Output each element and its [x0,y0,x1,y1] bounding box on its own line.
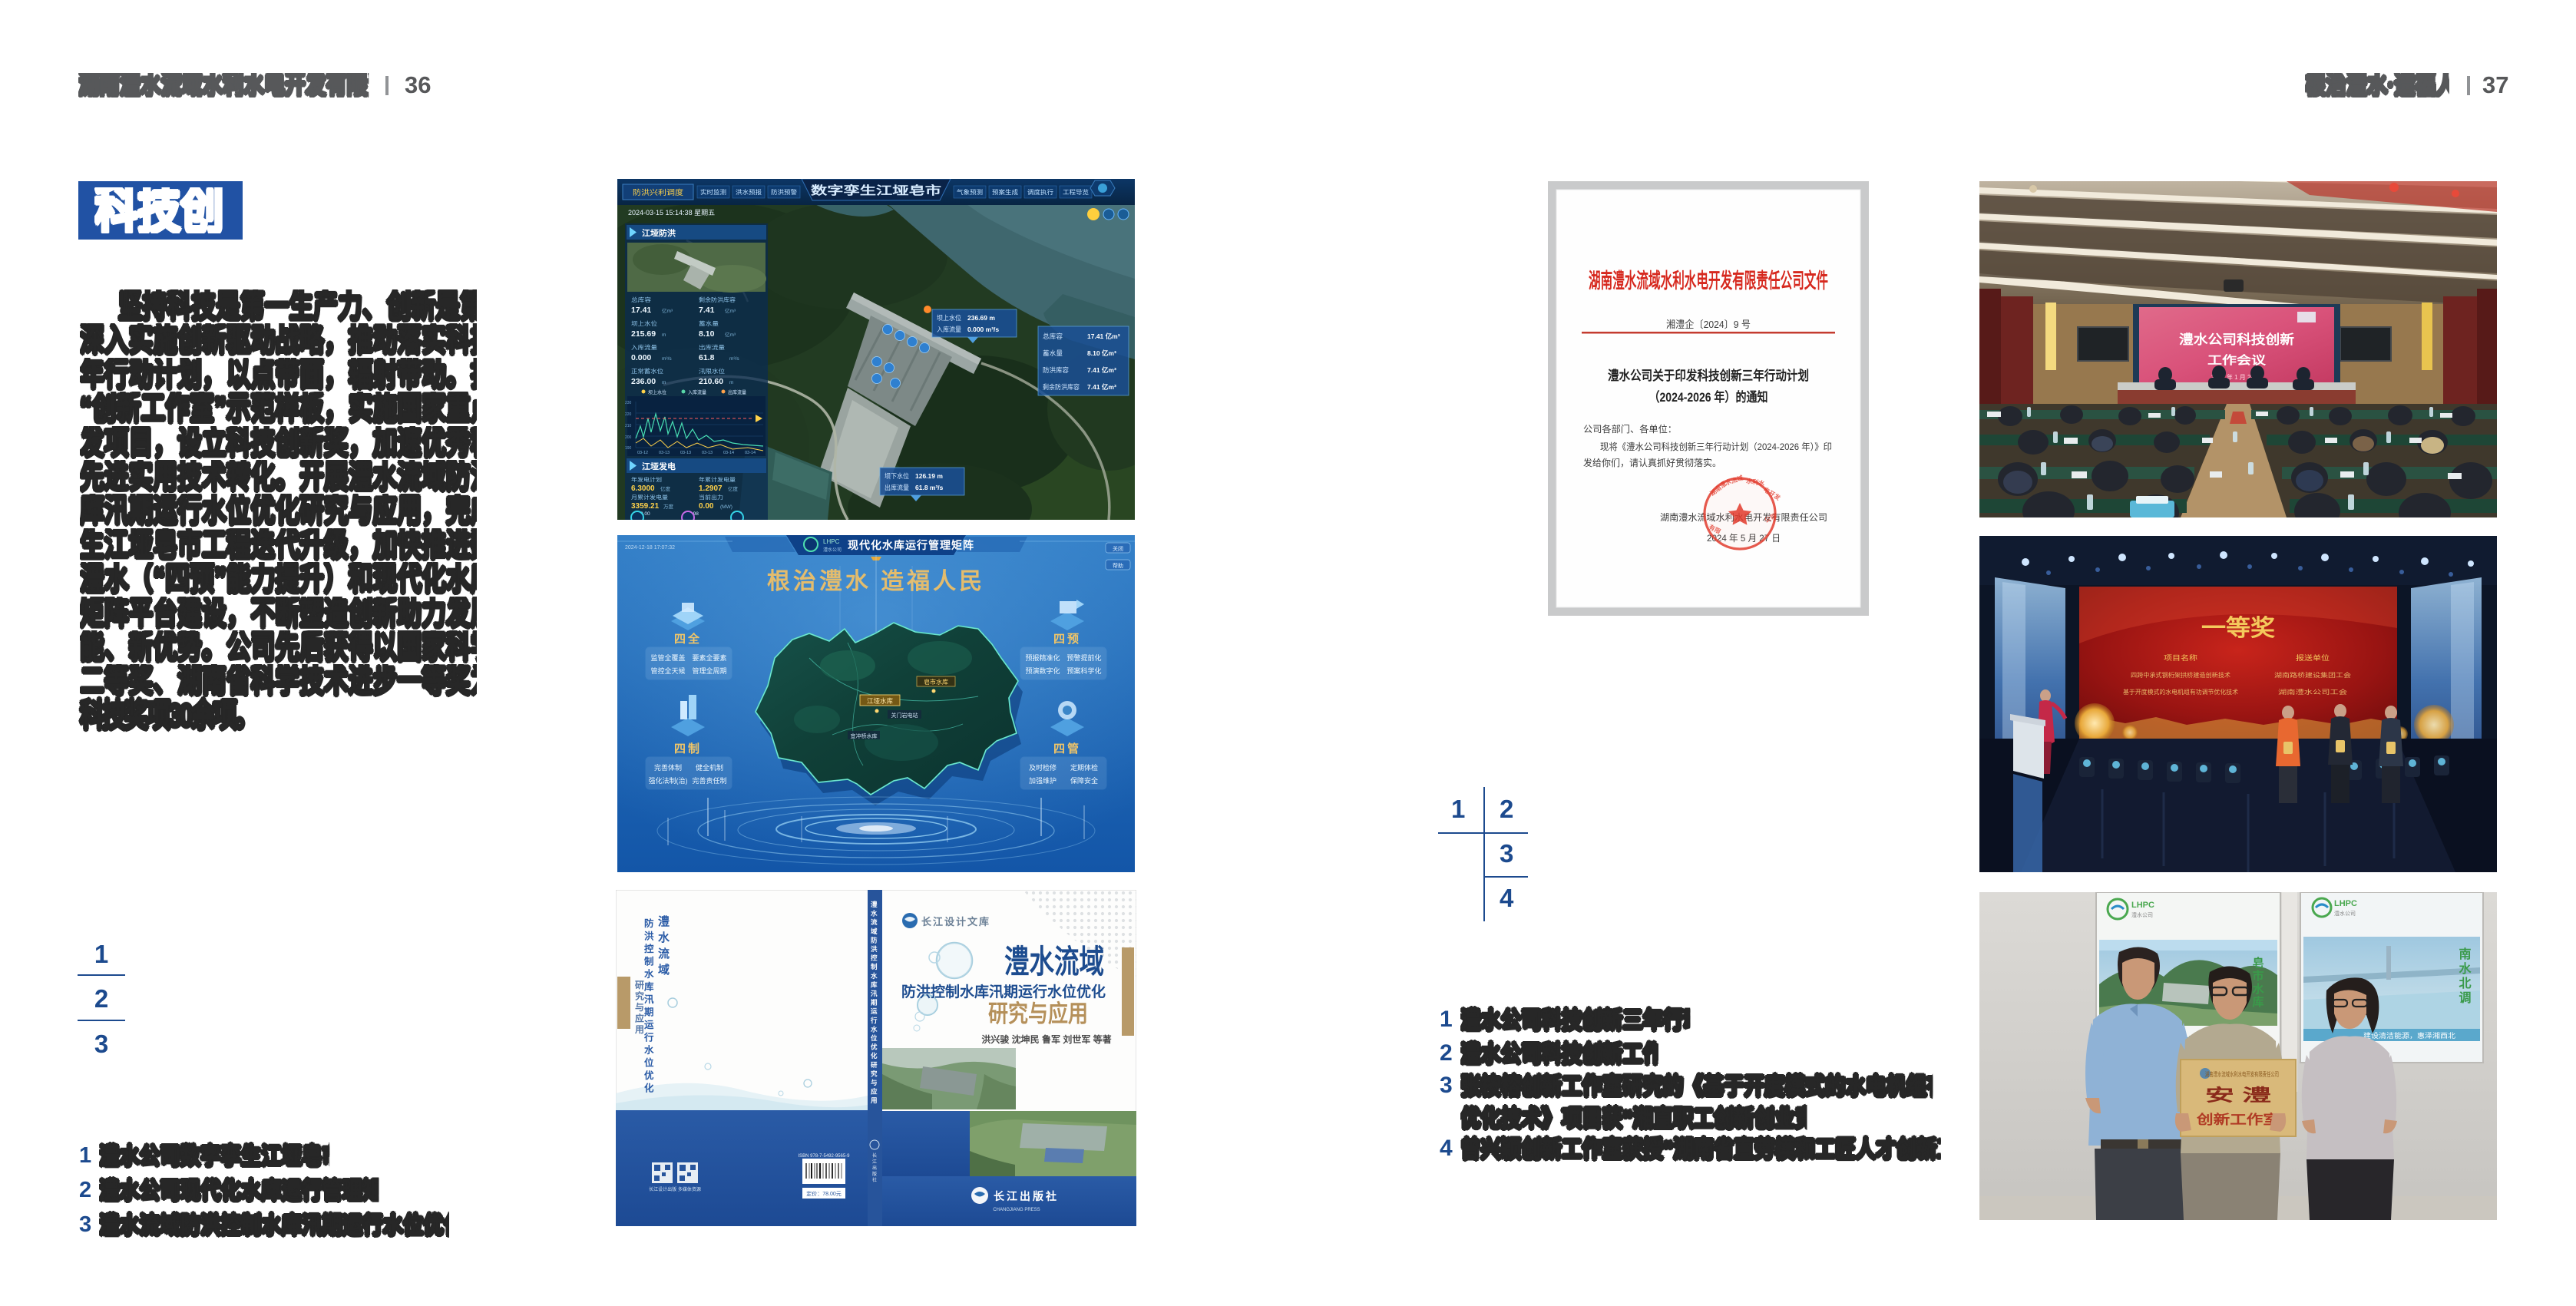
svg-text:工作会议: 工作会议 [2207,353,2267,367]
svg-text:亿度: 亿度 [728,485,739,492]
svg-text:坝上水位: 坝上水位 [648,388,666,395]
svg-text:澧: 澧 [658,914,670,928]
svg-text:江垭发电: 江垭发电 [642,461,676,471]
svg-text:m: m [662,332,666,338]
svg-text:澧水公司: 澧水公司 [823,547,842,553]
svg-text:关闭: 关闭 [1113,545,1123,552]
svg-text:6.3000: 6.3000 [631,484,655,493]
svg-text:入库流量: 入库流量 [631,343,658,351]
svg-text:调度执行: 调度执行 [1027,188,1053,196]
svg-text:运: 运 [871,1007,878,1015]
svg-text:坝上水位: 坝上水位 [631,319,658,327]
svg-text:CHANGJIANG PRESS: CHANGJIANG PRESS [993,1208,1040,1212]
svg-text:7.41: 7.41 [699,306,715,315]
svg-text:年发电计划: 年发电计划 [631,476,662,483]
svg-text:汛: 汛 [644,994,654,1005]
svg-text:期: 期 [871,999,878,1007]
svg-text:完善体制: 完善体制 [654,763,682,772]
svg-text:创新工作室: 创新工作室 [2196,1112,2280,1127]
svg-text:预警提前化: 预警提前化 [1066,653,1101,662]
svg-text:蓄水量: 蓄水量 [1043,349,1063,357]
svg-text:汛限水位: 汛限水位 [699,367,726,375]
svg-text:四管: 四管 [1053,742,1081,755]
svg-text:LHPC: LHPC [823,538,840,545]
svg-text:防: 防 [644,918,654,929]
svg-text:220: 220 [625,412,632,417]
svg-text:坝下水位: 坝下水位 [885,472,909,480]
svg-text:洪兴骏 沈坤民 鲁军 刘世军 等著: 洪兴骏 沈坤民 鲁军 刘世军 等著 [981,1033,1111,1045]
svg-text:四跨中承式钢桁架拱桥建造创新技术: 四跨中承式钢桁架拱桥建造创新技术 [2131,671,2230,679]
svg-text:万度: 万度 [663,503,674,510]
svg-text:建设清洁能源，惠泽湘西北: 建设清洁能源，惠泽湘西北 [2363,1031,2455,1040]
svg-text:江垭防洪: 江垭防洪 [642,228,676,238]
svg-text:蓄水量: 蓄水量 [699,319,719,327]
svg-text:水: 水 [644,1044,654,1056]
svg-text:行: 行 [870,1017,878,1024]
svg-text:皂市水库: 皂市水库 [924,678,948,686]
svg-text:预演数字化: 预演数字化 [1025,666,1060,675]
svg-text:流: 流 [658,947,670,960]
svg-text:究: 究 [871,1070,878,1077]
svg-text:项目名称: 项目名称 [2164,653,2197,662]
svg-text:定期体检: 定期体检 [1070,763,1098,772]
svg-text:四预: 四预 [1053,633,1081,646]
svg-text:2024-12-18 17:07:32: 2024-12-18 17:07:32 [625,545,675,551]
svg-text:总库容: 总库容 [1043,332,1063,340]
svg-text:亿m³: 亿m³ [662,307,673,314]
svg-text:库: 库 [644,981,654,993]
svg-text:水: 水 [658,931,670,944]
svg-text:入库流量: 入库流量 [688,388,706,395]
svg-text:用: 用 [634,1024,644,1035]
svg-text:03-13: 03-13 [702,451,713,455]
svg-text:管理全周期: 管理全周期 [692,666,726,675]
svg-text:澧水公司科技创新: 澧水公司科技创新 [2179,332,2294,347]
svg-text:3359.21: 3359.21 [631,502,660,511]
svg-text:强化法制(治): 强化法制(治) [649,776,688,785]
svg-text:亿m³: 亿m³ [725,331,736,338]
svg-text:0.000: 0.000 [631,353,651,362]
svg-text:7.41 亿m³: 7.41 亿m³ [1087,366,1116,374]
svg-text:行: 行 [643,1032,654,1043]
svg-text:（2024-2026 年）的通知: （2024-2026 年）的通知 [1649,389,1768,405]
svg-text:应: 应 [871,1088,878,1096]
svg-text:期: 期 [644,1007,654,1018]
svg-text:m: m [729,380,733,385]
svg-text:126.19 m: 126.19 m [915,472,943,480]
svg-text:加强维护: 加强维护 [1029,776,1057,785]
svg-text:防洪库容: 防洪库容 [1043,366,1069,374]
svg-text:洪: 洪 [871,945,878,953]
svg-text:控: 控 [871,954,878,962]
svg-text:公司各部门、各单位：: 公司各部门、各单位： [1583,423,1677,435]
svg-text:LHPC: LHPC [2334,899,2357,908]
svg-text:长: 长 [872,1152,877,1159]
svg-text:03-14: 03-14 [745,451,756,455]
svg-text:研: 研 [871,1061,878,1069]
svg-text:洪水预报: 洪水预报 [736,188,762,196]
svg-text:用: 用 [870,1096,878,1104]
svg-text:236.00: 236.00 [631,377,656,386]
svg-text:流: 流 [871,918,878,926]
svg-text:数字孪生江垭皂市: 数字孪生江垭皂市 [811,184,941,197]
svg-text:制: 制 [871,963,878,970]
svg-text:现代化水库运行管理矩阵: 现代化水库运行管理矩阵 [848,539,974,551]
svg-text:化: 化 [871,1052,878,1060]
svg-text:湘澧企〔2024〕9 号: 湘澧企〔2024〕9 号 [1666,319,1751,330]
svg-text:与: 与 [871,1079,878,1086]
svg-text:190: 190 [625,446,632,451]
svg-text:澧水公司: 澧水公司 [2334,910,2356,917]
svg-text:0.00: 0.00 [699,502,714,511]
svg-text:预报精准化: 预报精准化 [1025,653,1060,662]
svg-text:7.41 亿m³: 7.41 亿m³ [1087,383,1116,391]
svg-text:研: 研 [635,980,644,990]
svg-text:社: 社 [872,1177,877,1183]
svg-text:澧水流域: 澧水流域 [1004,944,1104,980]
svg-text:四全: 四全 [674,632,702,646]
svg-text:亿m³: 亿m³ [725,307,736,314]
svg-text:出库流量: 出库流量 [699,343,726,351]
svg-text:亿度: 亿度 [660,485,671,492]
svg-text:1.2907: 1.2907 [699,484,723,493]
svg-text:管控全天候: 管控全天候 [650,666,685,675]
svg-text:优: 优 [871,1043,878,1051]
svg-text:防: 防 [871,936,878,944]
svg-text:澧水公司: 澧水公司 [2131,911,2153,918]
svg-text:当前出力: 当前出力 [699,494,723,501]
svg-text:2024-03-15 15:14:38 星期五: 2024-03-15 15:14:38 星期五 [628,209,715,217]
svg-text:230: 230 [625,401,632,405]
svg-text:优: 优 [644,1070,654,1081]
svg-text:制: 制 [644,956,654,967]
svg-text:位: 位 [871,1034,878,1042]
svg-text:版: 版 [872,1171,877,1177]
svg-text:03-14: 03-14 [723,451,734,455]
svg-text:8.10: 8.10 [699,329,715,339]
svg-text:正常蓄水位: 正常蓄水位 [631,367,664,375]
svg-text:月累计发电量: 月累计发电量 [631,494,668,501]
svg-text:61.8: 61.8 [699,353,715,362]
svg-text:210.60: 210.60 [699,377,723,386]
svg-text:200: 200 [625,435,632,440]
svg-text:江垭水库: 江垭水库 [867,697,894,705]
svg-text:长江设计出版 多媒体资源: 长江设计出版 多媒体资源 [649,1186,701,1192]
svg-text:汛: 汛 [871,990,878,997]
svg-text:长江出版社: 长江出版社 [994,1190,1059,1202]
svg-text:预案科学化: 预案科学化 [1066,666,1101,675]
svg-text:坝上水位: 坝上水位 [937,314,961,322]
svg-text:出库流量: 出库流量 [885,484,909,491]
svg-text:化: 化 [644,1083,654,1094]
svg-text:03-13: 03-13 [680,451,691,455]
svg-text:帮助: 帮助 [1113,562,1123,569]
svg-text:防洪控制水库汛期运行水位优化: 防洪控制水库汛期运行水位优化 [901,983,1106,1000]
svg-text:防洪兴利调度: 防洪兴利调度 [633,188,684,197]
svg-text:皂市水库: 皂市水库 [2251,956,2264,1009]
svg-text:湖南路桥建设集团工会: 湖南路桥建设集团工会 [2274,671,2351,679]
svg-text:工程导览: 工程导览 [1063,188,1089,196]
svg-text:LHPC: LHPC [2131,901,2154,910]
svg-text:位: 位 [644,1057,654,1069]
svg-text:0.000 m³/s: 0.000 m³/s [967,326,999,333]
svg-text:气象预测: 气象预测 [957,188,983,196]
svg-text:保障安全: 保障安全 [1070,776,1098,785]
svg-text:与: 与 [635,1002,644,1013]
svg-text:出库流量: 出库流量 [728,388,746,395]
svg-text:m: m [662,380,666,385]
svg-text:安 澧: 安 澧 [2205,1086,2271,1105]
svg-text:210: 210 [625,424,632,428]
svg-text:域: 域 [871,927,878,935]
svg-text:域: 域 [658,963,670,977]
svg-text:江: 江 [872,1159,877,1165]
svg-text:剩余防洪库容: 剩余防洪库容 [699,296,736,303]
svg-text:03-12: 03-12 [637,451,648,455]
svg-text:关门岩电站: 关门岩电站 [891,712,918,719]
svg-text:要素全要素: 要素全要素 [692,653,726,662]
svg-text:监管全覆盖: 监管全覆盖 [650,653,685,662]
svg-text:入库流量: 入库流量 [937,326,961,333]
svg-text:湖南澧水流域水利水电开发有限责任公司: 湖南澧水流域水利水电开发有限责任公司 [2205,1070,2279,1078]
svg-text:236.69 m: 236.69 m [967,314,995,322]
svg-text:四制: 四制 [674,742,702,755]
svg-text:及时检修: 及时检修 [1029,763,1057,772]
svg-text:出: 出 [872,1165,877,1171]
svg-text:水: 水 [870,910,878,918]
svg-text:湖南澧水流域水利水电开发有限责任公司文件: 湖南澧水流域水利水电开发有限责任公司文件 [1589,269,1828,293]
svg-text:宜冲桥水库: 宜冲桥水库 [851,732,878,739]
svg-text:湖南澧水公司工会: 湖南澧水公司工会 [2278,688,2347,696]
svg-text:水: 水 [644,968,654,980]
svg-text:健全机制: 健全机制 [696,763,723,772]
svg-text:长江设计文库: 长江设计文库 [921,916,990,927]
svg-text:实时监测: 实时监测 [700,188,726,196]
svg-text:洪: 洪 [644,931,654,942]
svg-text:预案生成: 预案生成 [992,188,1018,196]
svg-text:03-13: 03-13 [659,451,670,455]
svg-text:17.41: 17.41 [631,306,651,315]
svg-text:研究与应用: 研究与应用 [988,1000,1088,1027]
svg-text:控: 控 [644,943,654,954]
svg-text:现将《澧水公司科技创新三年行动计划（2024-2026 年）: 现将《澧水公司科技创新三年行动计划（2024-2026 年）》印 [1600,441,1832,452]
svg-text:防洪预警: 防洪预警 [771,188,797,196]
svg-text:南水北调: 南水北调 [2457,947,2472,1006]
svg-text:定价：78.00元: 定价：78.00元 [806,1190,842,1197]
svg-text:澧: 澧 [871,901,878,908]
svg-text:8.10 亿m³: 8.10 亿m³ [1087,349,1116,357]
svg-text:基于开度模式的水电机组有功调节优化技术: 基于开度模式的水电机组有功调节优化技术 [2123,688,2238,696]
svg-text:ISBN 978-7-5492-9565-9: ISBN 978-7-5492-9565-9 [798,1154,850,1159]
svg-text:水: 水 [870,1025,878,1033]
svg-text:m³/s: m³/s [662,356,672,362]
svg-text:(MW): (MW) [720,504,732,510]
svg-text:澧水公司关于印发科技创新三年行动计划: 澧水公司关于印发科技创新三年行动计划 [1608,368,1809,383]
svg-text:究: 究 [635,990,644,1002]
svg-text:剩余防洪库容: 剩余防洪库容 [1043,383,1080,391]
svg-text:61.8 m³/s: 61.8 m³/s [915,484,944,491]
svg-text:年累计发电量: 年累计发电量 [699,476,736,483]
svg-text:运: 运 [644,1020,654,1030]
svg-text:m³/s: m³/s [729,356,739,362]
svg-text:应: 应 [635,1013,644,1024]
svg-text:报送单位: 报送单位 [2296,653,2330,662]
svg-text:水: 水 [870,972,878,980]
svg-text:发给你们，请认真抓好贯彻落实。: 发给你们，请认真抓好贯彻落实。 [1583,457,1721,468]
svg-text:215.69: 215.69 [631,329,656,339]
svg-text:一等奖: 一等奖 [2201,615,2275,641]
svg-text:17.41 亿m³: 17.41 亿m³ [1087,332,1120,340]
svg-text:库: 库 [871,980,878,988]
svg-text:总库容: 总库容 [631,296,652,303]
svg-text:完善责任制: 完善责任制 [692,776,726,785]
